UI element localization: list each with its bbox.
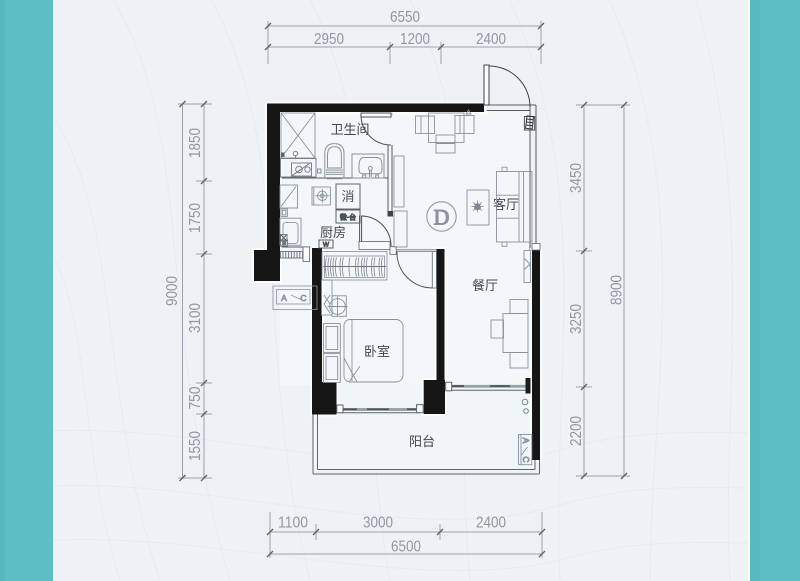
svg-text:卧室: 卧室 [364, 344, 390, 359]
svg-text:1200: 1200 [400, 31, 430, 48]
svg-text:2400: 2400 [476, 515, 506, 532]
svg-text:2200: 2200 [568, 416, 585, 446]
svg-text:6500: 6500 [391, 539, 421, 556]
svg-text:2400: 2400 [476, 31, 506, 48]
svg-text:D: D [434, 205, 450, 230]
svg-text:2950: 2950 [314, 31, 344, 48]
svg-text:W: W [323, 242, 330, 249]
svg-text:C: C [300, 293, 306, 303]
svg-text:微-台: 微-台 [340, 213, 356, 222]
svg-text:餐厅: 餐厅 [472, 278, 498, 293]
svg-text:A: A [281, 293, 287, 303]
svg-text:750: 750 [187, 386, 204, 409]
svg-text:1750: 1750 [187, 203, 204, 233]
svg-text:3250: 3250 [568, 304, 585, 334]
svg-text:1100: 1100 [278, 515, 308, 532]
svg-text:9000: 9000 [164, 276, 181, 306]
svg-text:消: 消 [341, 189, 354, 204]
svg-text:6550: 6550 [390, 9, 420, 26]
svg-text:8900: 8900 [609, 275, 626, 305]
svg-text:3000: 3000 [363, 515, 393, 532]
svg-text:卫生间: 卫生间 [330, 122, 369, 137]
svg-text:1850: 1850 [187, 128, 204, 158]
svg-text:3100: 3100 [187, 303, 204, 333]
svg-text:C: C [521, 456, 531, 462]
svg-text:1550: 1550 [187, 431, 204, 461]
svg-text:阳台: 阳台 [409, 434, 435, 449]
svg-text:3450: 3450 [568, 163, 585, 193]
svg-text:厨房: 厨房 [320, 225, 346, 240]
svg-text:A: A [521, 438, 531, 444]
